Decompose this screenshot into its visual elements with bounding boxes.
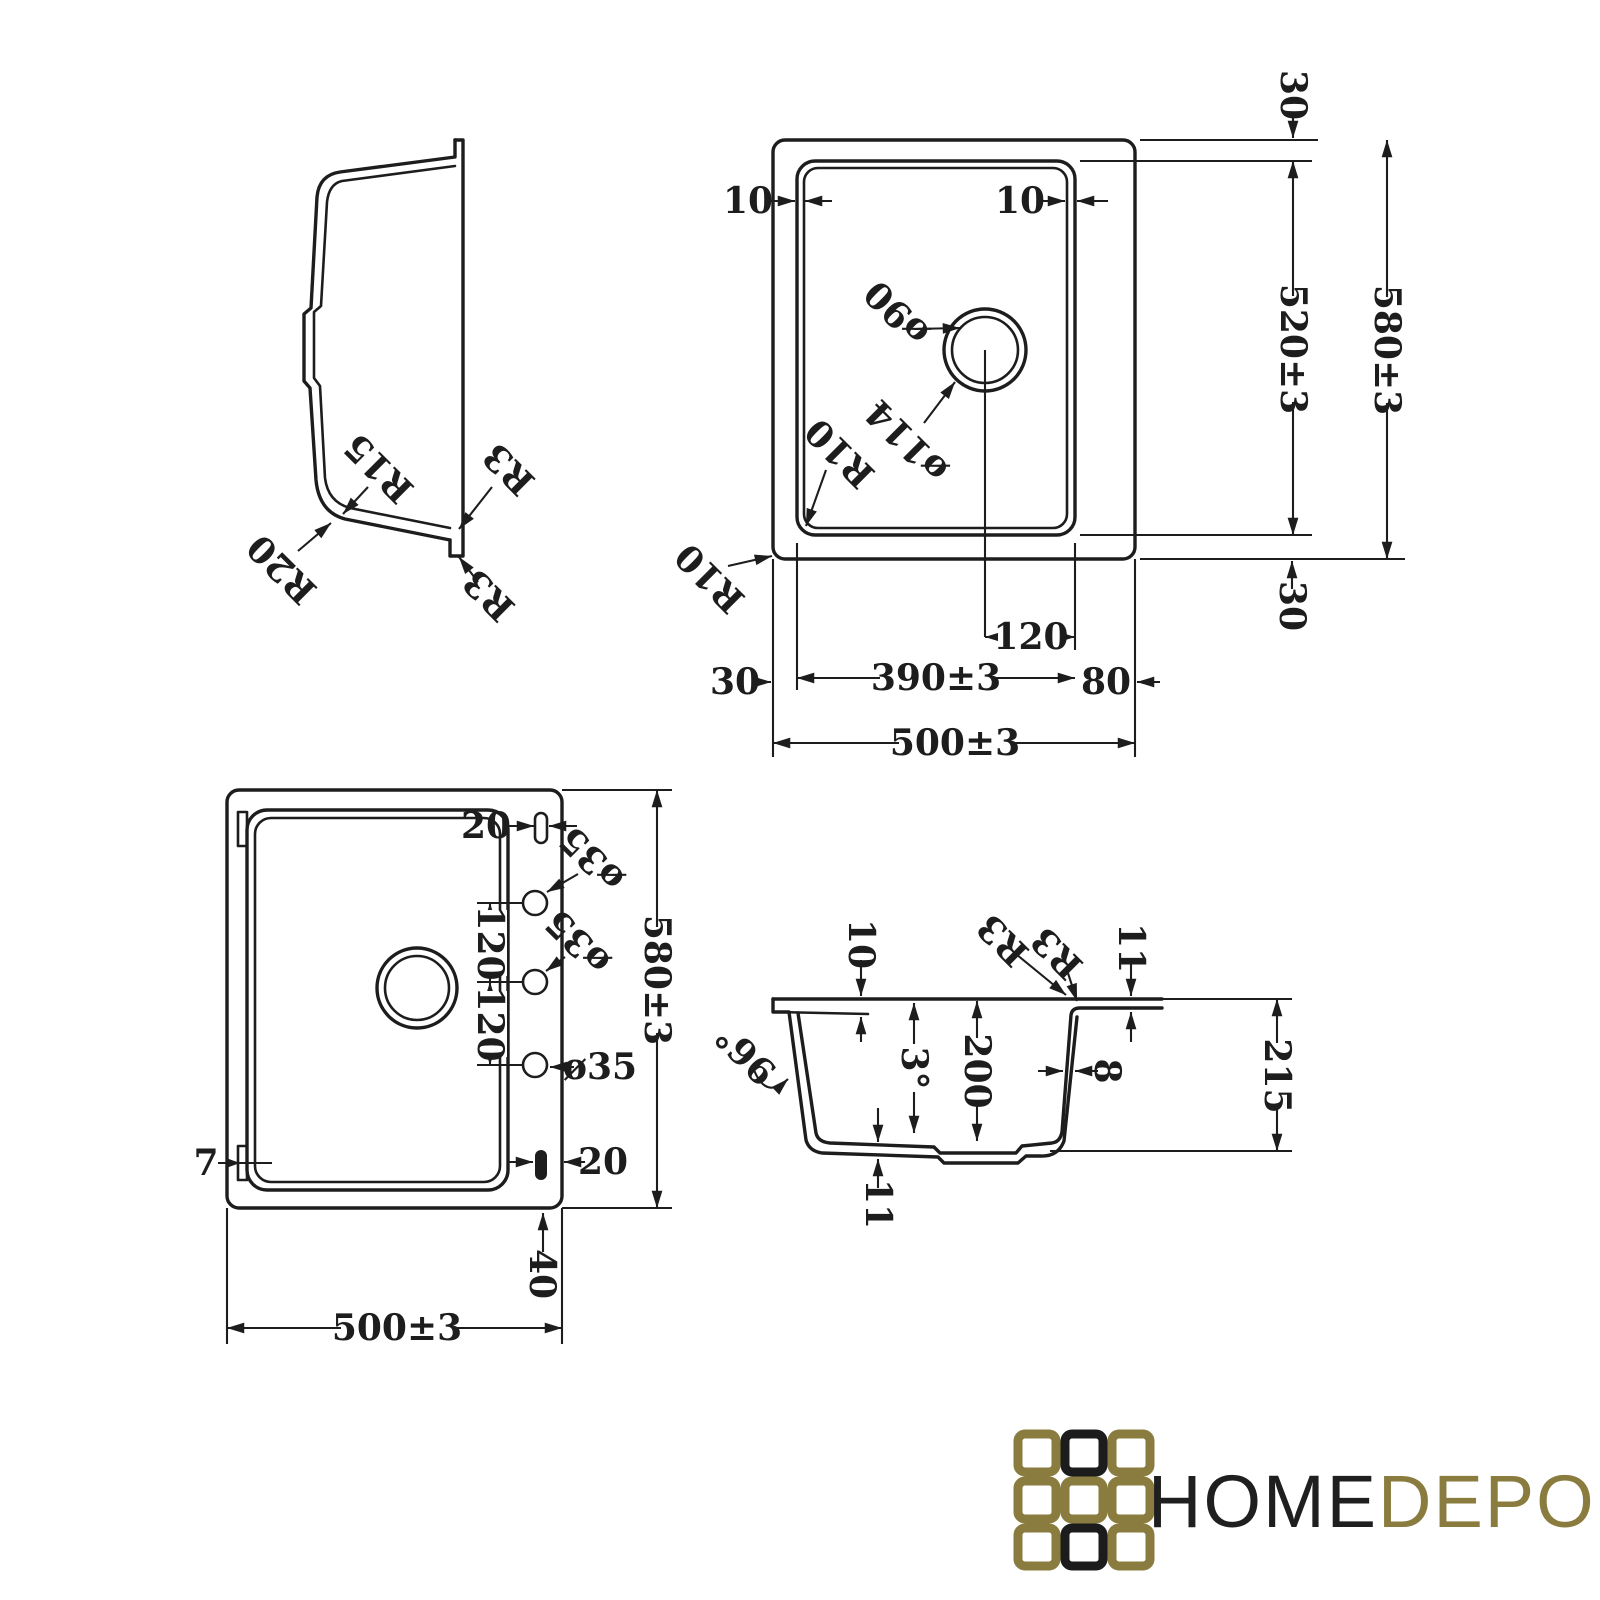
view-side-profile: R15 R20 R3 R3 <box>239 140 543 629</box>
faucet-hole-bottom <box>523 1053 547 1077</box>
dim-r3-upper-label: R3 <box>475 435 544 504</box>
dim-outer-wall-angle-label: 96° <box>707 1015 785 1093</box>
dim-clip-tab-label: 7 <box>193 1142 218 1184</box>
dim-draft-angle-label: 3° <box>893 1046 935 1089</box>
drain-outer-circle-bottom <box>377 948 457 1028</box>
dim-overall-length-bottom-label: 580±3 <box>636 915 678 1045</box>
dim-overall-width-label: 500±3 <box>890 722 1020 764</box>
dim-hole-spacing-upper-label: 120 <box>469 905 511 980</box>
dim-bowl-length-label: 520±3 <box>1272 284 1314 414</box>
dim-overall-height-label: 215 <box>1256 1038 1298 1113</box>
dim-wall-left-label: 10 <box>723 180 773 222</box>
logo-text-secondary: DEPO <box>1378 1460 1596 1543</box>
logo-grid-icon <box>1018 1434 1150 1566</box>
dim-bowl-depth-label: 200 <box>956 1033 998 1108</box>
dim-edge-bottom-label: 30 <box>1271 581 1313 631</box>
dim-overall-width-bottom-label: 500±3 <box>332 1307 462 1349</box>
dim-drain-offset-label: 120 <box>993 616 1068 658</box>
dim-edge-left-label: 30 <box>710 661 760 703</box>
view-cross-section: 10 R3 R3 11 96° 3° 200 8 215 11 <box>707 906 1298 1229</box>
technical-drawing: R15 R20 R3 R3 10 10 ø90 ø114 R10 R10 <box>0 0 1600 1600</box>
dim-wall-thickness-label: 8 <box>1086 1058 1128 1083</box>
sink-outer-edge <box>773 140 1135 559</box>
drain-inner-circle-bottom <box>385 956 449 1020</box>
dim-edge-right-label: 80 <box>1081 661 1131 703</box>
dim-wall-right-label: 10 <box>995 180 1045 222</box>
dim-hole-bottom-dia-label: ø35 <box>563 1046 637 1088</box>
view-top-plan: 10 10 ø90 ø114 R10 R10 30 520±3 580±3 30 <box>667 70 1408 764</box>
drawing-sheet: R15 R20 R3 R3 10 10 ø90 ø114 R10 R10 <box>0 0 1600 1600</box>
mounting-slot-top <box>535 813 547 843</box>
dim-corner-r3-outer-label: R3 <box>1023 919 1092 988</box>
dim-rim-thickness-right-label: 11 <box>1110 923 1152 973</box>
dim-r3-lower-label: R3 <box>455 561 524 630</box>
dim-r15-label: R15 <box>336 425 422 511</box>
view-bottom-plan: 20 ø35 ø35 ø35 120 120 7 20 580±3 <box>193 790 678 1349</box>
brand-logo: HOMEDEPO <box>1018 1434 1596 1566</box>
logo-wordmark: HOMEDEPO <box>1148 1460 1596 1543</box>
dim-drain-inner-dia-label: ø90 <box>856 272 938 354</box>
dim-hole-spacing-lower-label: 120 <box>469 986 511 1061</box>
faucet-hole-middle <box>523 970 547 994</box>
mounting-slot-bottom <box>535 1150 547 1180</box>
dim-bowl-width-label: 390±3 <box>871 657 1001 699</box>
dim-overall-length-label: 580±3 <box>1366 285 1408 415</box>
profile-right-edge <box>450 140 463 556</box>
dim-slot-top-label: 20 <box>461 805 511 847</box>
dim-hole-mid-dia-label: ø35 <box>537 901 619 983</box>
logo-text-primary: HOME <box>1148 1460 1378 1543</box>
dim-edge-top-label: 30 <box>1272 70 1314 120</box>
dim-corner-outer-label: R10 <box>667 535 753 621</box>
dim-ledge-label: 40 <box>521 1249 563 1299</box>
dim-slot-bottom-label: 20 <box>578 1141 628 1183</box>
faucet-hole-top <box>523 891 547 915</box>
dim-bottom-thickness-label: 11 <box>857 1179 899 1229</box>
dim-rim-inset-label: 10 <box>840 919 882 969</box>
